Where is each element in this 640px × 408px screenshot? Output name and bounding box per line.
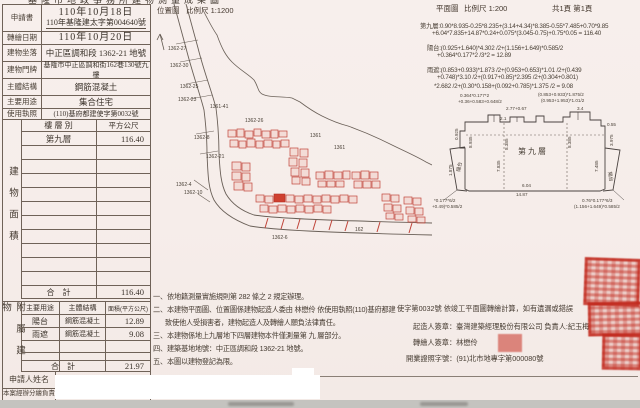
main-use: 集合住宅	[42, 95, 150, 108]
scan-smudge	[228, 402, 294, 406]
parcel-label: 1361	[310, 133, 321, 139]
empty-row	[21, 146, 150, 160]
balcony-right-outline	[603, 148, 620, 191]
dim-label: 3.975	[609, 134, 614, 146]
applicant-label: 申請人姓名	[3, 372, 56, 388]
parcel-label: 1362-8	[194, 135, 210, 141]
builder-signature: 起造人簽章：臺灣建築經理股份有限公司 負責人:紀玉梅	[413, 322, 590, 332]
note-2: 二、本建物平面圖、位置圖係建物起造人委由 林懋伶 依使用執照(110)基府都建	[153, 305, 395, 315]
empty-row	[21, 216, 150, 230]
dim-label: +0.36+0.583+0.648/2	[458, 99, 502, 104]
empty-row	[21, 341, 150, 353]
calc-line: 第九層:0.90*8.935-0.25*8.235+(3.14+4.34)*8.…	[420, 21, 608, 30]
license-number: 開業證照字號：(91)北市地專字第000080號	[406, 354, 543, 364]
dim-label: 8.385	[504, 138, 509, 150]
empty-row	[21, 160, 150, 174]
row-transcribe-date: 轉繪日期 110年10月20日	[3, 31, 150, 45]
dim-label: +0.49)*0.585/2	[432, 204, 463, 209]
north-arrow-icon	[157, 34, 164, 50]
area-total-value: 116.40	[97, 286, 150, 299]
field-label-application: 申請書	[3, 5, 42, 31]
dim-label: 0.364*0.177*2	[460, 93, 490, 98]
note-2-cont: 致使他人受損害者，建物起造人及轉繪人願負法律責任。	[165, 318, 340, 328]
row-building-address: 建物門牌 基隆市中正區調和街162巷130號九樓	[3, 61, 150, 79]
parcel-label: 1361-41	[210, 104, 229, 110]
document-paper: 基隆市地政事務所建物測量成果圖 位置圖 比例尺 1:1200 平面圖 比例尺 1…	[0, 0, 640, 400]
empty-row	[21, 202, 150, 216]
attached-use-2: 雨遮	[21, 328, 59, 341]
floor-label: 第九層	[518, 146, 548, 156]
parcel-label: 1362-10	[184, 190, 203, 196]
building-location: 中正區調和段 1362-21 地號	[42, 44, 150, 61]
dim-label: 8.385	[567, 136, 572, 148]
area-col-sqm: 平方公尺	[97, 119, 150, 132]
drafter-seal	[498, 334, 522, 352]
parcel-label: 1361	[334, 145, 345, 151]
dim-label: 7.485	[594, 160, 599, 172]
row-main-use: 主要用途 集合住宅	[3, 95, 150, 109]
location-map: 1362-27 1362-30 1362-25 1362-23 1361-41 …	[150, 4, 432, 292]
attached-col-structure: 主體結構	[60, 302, 105, 315]
main-structure: 鋼筋混凝土	[42, 78, 150, 95]
subject-building-footprint	[274, 194, 285, 202]
dim-label: *0.177*6/2	[434, 198, 456, 203]
floor-plan: 第九層 陽台 陽台 0.364*0.177*2 +0.36+0.583+0.64…	[432, 86, 640, 272]
note-3: 三、本建物係地上九層地下四層建物本件僅測量第 九 層部分。	[153, 331, 345, 341]
building-info-table: 申請書 110年10月18日 110年基隆建太字第004640號 轉繪日期 11…	[2, 4, 151, 402]
note-1: 一、依地籍測量實施規則第 282 條之 2 規定辦理。	[153, 292, 308, 302]
location-map-drawing: 1362-27 1362-30 1362-25 1362-23 1361-41 …	[150, 4, 432, 292]
note-4: 四、建築基地地號：中正區調和段 1362-21 地號。	[153, 344, 307, 354]
row-structure: 主體結構 鋼筋混凝土	[3, 78, 150, 96]
empty-row	[21, 272, 150, 286]
empty-row	[21, 188, 150, 202]
red-seal	[602, 334, 640, 371]
dim-label: 0.55	[607, 122, 616, 127]
parcel-label: 1362-23	[178, 97, 197, 103]
parcel-label-subject: 1362-21	[206, 154, 225, 160]
dim-label: 0.925	[454, 128, 459, 140]
attached-area-1: 12.89	[106, 315, 150, 328]
side-label-attached: 附屬建物	[3, 302, 22, 372]
area-total-label: 合 計	[21, 286, 96, 299]
empty-row	[21, 174, 150, 188]
floor-name: 第九層	[21, 132, 96, 146]
side-label-building-area: 建物面積	[3, 119, 22, 299]
attached-structure-2: 鋼筋混凝土	[60, 328, 105, 341]
parcel-label: 1362-6	[272, 235, 288, 241]
empty-row	[21, 230, 150, 244]
dim-label: (1.156+1.649)*0.585/2	[574, 204, 620, 209]
receipt-date: 110年10月18日	[59, 8, 134, 18]
transcribe-date: 110年10月20日	[42, 31, 150, 44]
dim-label: 1.875	[448, 164, 453, 176]
red-seal	[583, 257, 640, 307]
scan-edge-strip	[0, 400, 640, 408]
floor-area-value: 116.40	[97, 132, 150, 146]
dim-label: 8.935	[468, 136, 473, 148]
attached-total-value: 21.97	[106, 361, 150, 372]
area-col-floor: 樓 層 別	[21, 119, 96, 132]
parcel-label: 1362-27	[168, 46, 187, 52]
attached-use-1: 陽台	[21, 315, 59, 328]
attached-structure-1: 鋼筋混凝土	[60, 315, 105, 328]
page-count: 共1頁 第1頁	[552, 3, 592, 14]
calc-line: 陽台:(0.925+1.640)*4.302 /2+(1.156+1.649)*…	[427, 43, 563, 52]
balcony-left-label: 陽台	[455, 161, 464, 172]
attached-total-label: 合 計	[21, 361, 105, 372]
attached-area-2: 9.08	[106, 328, 150, 341]
dim-label: (0.853+0.933)*1.875/2	[538, 92, 584, 97]
floor-plan-scale: 比例尺 1:200	[464, 3, 507, 14]
note-5: 五、本圖以建物登記為限。	[153, 357, 237, 367]
drafter-signature: 轉繪人簽章：林懋伶	[413, 338, 478, 348]
scan-smudge	[420, 402, 468, 406]
calc-line: +0.748)*3.10 /2+(0.917+0.85)*2.395 /2+(0…	[437, 74, 578, 81]
dim-label: 14.87	[516, 192, 528, 197]
balcony-right-label: 陽台	[606, 171, 615, 182]
parcel-label: 1362-26	[245, 118, 264, 124]
parcel-label: 1362-30	[170, 63, 189, 69]
red-seal	[588, 302, 640, 337]
dim-label: 6.04	[522, 183, 531, 188]
dim-label: 3.4	[577, 106, 584, 111]
use-permit-number: (110)基府都建使字第0032號	[42, 108, 150, 119]
attached-col-area: 面積(平方公尺)	[106, 302, 150, 315]
floor-plan-title: 平面圖	[436, 3, 459, 14]
handler-label: 本案經辦分繪負責	[3, 388, 56, 400]
calc-line: +6.04*7.835+14.87*0.24+0.075*(3.045-0.75…	[432, 30, 601, 37]
street-number-label: 162	[355, 227, 364, 233]
attached-col-use: 主要用途	[21, 302, 59, 315]
empty-row	[21, 258, 150, 272]
note-2-right-cont: 使字第0032號 依竣工平面圖轉繪計算，如有遺漏或錯誤	[397, 304, 573, 314]
empty-row	[21, 244, 150, 258]
case-number: 110年基隆建太字第004640號	[46, 18, 146, 29]
scanned-survey-document: 基隆市地政事務所建物測量成果圖 位置圖 比例尺 1:1200 平面圖 比例尺 1…	[0, 0, 640, 408]
building-footprints	[228, 129, 425, 223]
floor-plan-drawing: 第九層 陽台 陽台 0.364*0.177*2 +0.36+0.583+0.64…	[432, 86, 640, 272]
redaction-box-applicant	[55, 375, 320, 399]
calc-line: +0.364*0.177*2 /3*2 = 12.89	[437, 52, 511, 59]
dim-label: 2.1	[500, 116, 507, 121]
row-application: 申請書 110年10月18日 110年基隆建太字第004640號	[3, 5, 150, 32]
dim-label: (0.953+1.953)*1.01/2	[541, 98, 585, 103]
parcel-label: 1362-25	[180, 84, 199, 90]
parcel-label: 1362-4	[176, 182, 192, 188]
dim-label: 2.77+0.67	[506, 106, 527, 111]
dim-label: 7.835	[496, 160, 501, 172]
building-address: 基隆市中正區調和街162巷130號九樓	[42, 61, 150, 78]
calc-line: 雨遮:(0.853+0.933)*1.873 /2+(0.953+0.653)*…	[427, 65, 581, 74]
dim-label: 0.76*0.177*6/3	[582, 198, 613, 203]
empty-row	[21, 353, 150, 361]
